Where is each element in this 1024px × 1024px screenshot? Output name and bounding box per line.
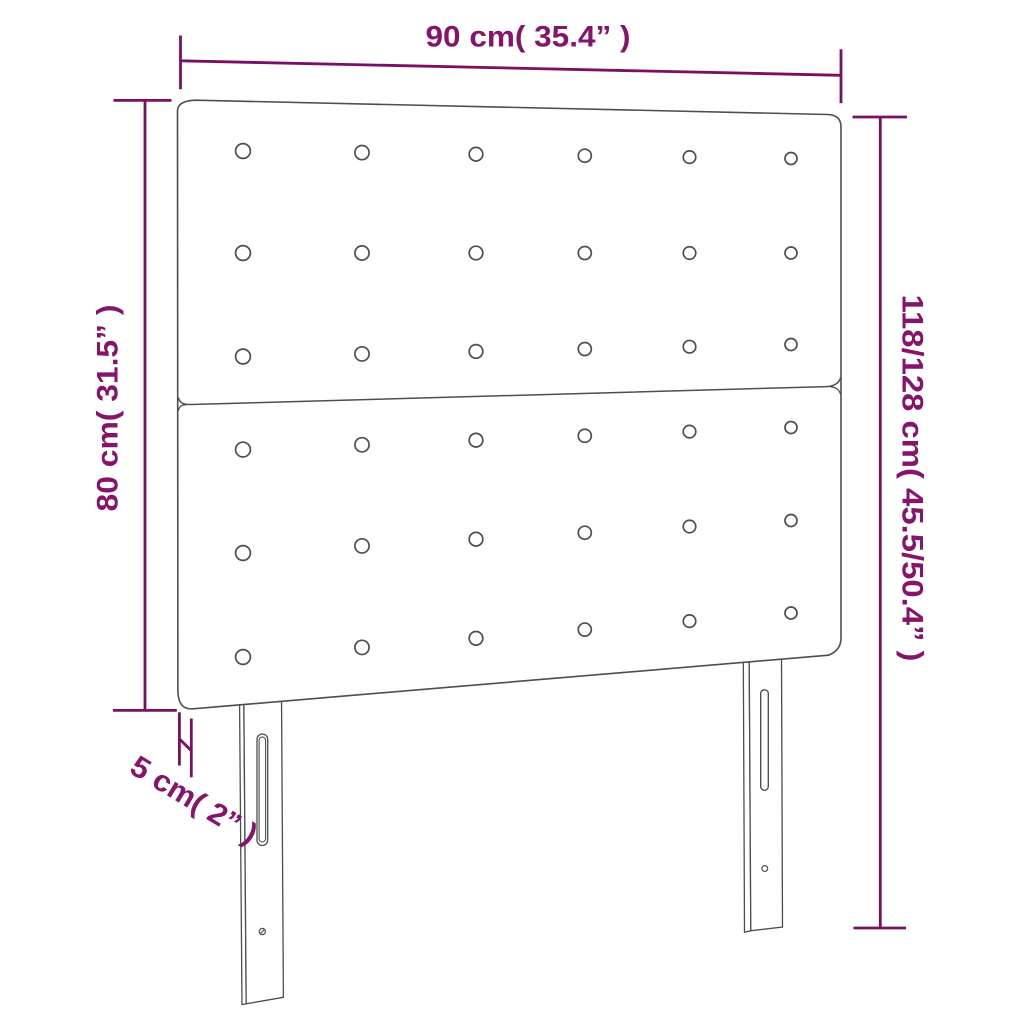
svg-text:80 cm( 31.5” ): 80 cm( 31.5” ) [92,305,125,512]
svg-text:90 cm( 35.4” ): 90 cm( 35.4” ) [426,20,631,53]
svg-text:118/128 cm( 45.5/50.4” ): 118/128 cm( 45.5/50.4” ) [896,295,929,662]
